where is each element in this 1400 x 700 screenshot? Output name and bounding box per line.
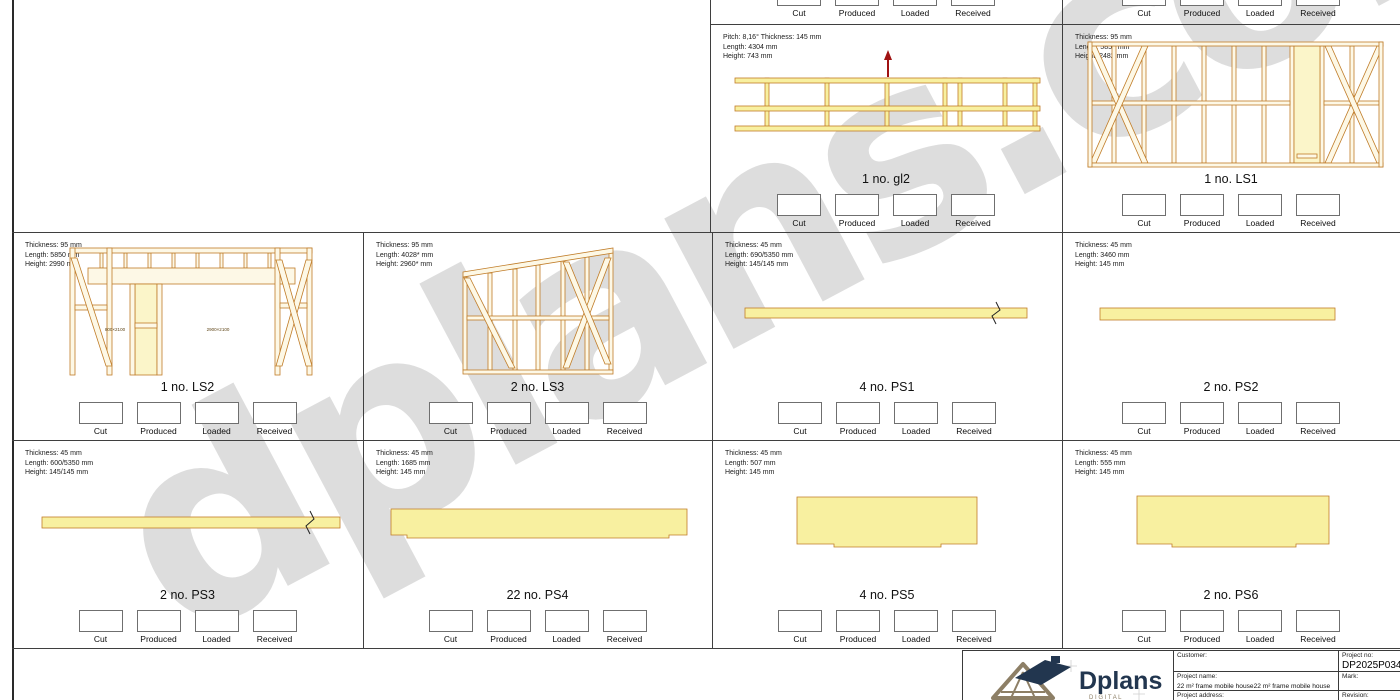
loaded-checkbox[interactable] [894,610,938,632]
produced-checkbox[interactable] [836,402,880,424]
produced-checkbox[interactable] [1180,194,1224,216]
cut-label: Cut [1137,218,1150,228]
checkbox-loaded: Loaded [892,194,938,228]
received-checkbox[interactable] [1296,0,1340,6]
project-no-cell: Project no: DP2025P034 [1339,651,1400,672]
revision-cell: Revision: [1339,691,1400,700]
loaded-checkbox[interactable] [1238,194,1282,216]
opening-size-label: 800×2100 [105,327,126,332]
produced-label: Produced [1184,218,1220,228]
panel-ps3: Thickness: 45 mm Length: 600/5350 mm Hei… [12,440,363,648]
loaded-checkbox[interactable] [894,402,938,424]
up-arrow-icon [884,50,892,77]
checkbox-cut: Cut [78,402,124,436]
cut-checkbox[interactable] [429,610,473,632]
cut-label: Cut [1137,8,1150,18]
wall-frame-drawing: 800×2100 2900×2100 [12,232,363,392]
loaded-checkbox[interactable] [1238,0,1282,6]
loaded-checkbox[interactable] [893,194,937,216]
chimney-icon [1051,656,1060,663]
panel-ps1: Thickness: 45 mm Length: 690/5350 mm Hei… [712,232,1062,440]
loaded-checkbox[interactable] [545,610,589,632]
grid-line [12,648,1400,649]
status-checkboxes: Cut Produced Loaded Received [712,402,1062,436]
dplans-logo-icon: Dplans D I G I T A L [989,656,1179,700]
loaded-label: Loaded [552,426,580,436]
received-label: Received [955,218,990,228]
status-checkboxes: Cut Produced Loaded Received [12,402,363,436]
gable-ladder-drawing [710,24,1062,184]
checkbox-produced: Produced [835,402,881,436]
cut-label: Cut [792,218,805,228]
checkbox-loaded: Loaded [544,402,590,436]
production-sheet: dplans.com Cut Produced Loaded Received … [0,0,1400,700]
project-name-label: Project name: [1177,673,1338,681]
cut-label: Cut [793,426,806,436]
cut-checkbox[interactable] [1122,194,1166,216]
checkbox-received: Received [950,194,996,228]
produced-label: Produced [1184,426,1220,436]
panel-ls2: Thickness: 95 mm Length: 5850 mm Height:… [12,232,363,440]
checkbox-received: Received [1295,402,1341,436]
cut-label: Cut [94,634,107,644]
checkbox-cut: Cut [428,610,474,644]
checkbox-produced: Produced [1179,610,1225,644]
produced-checkbox[interactable] [1180,402,1224,424]
revision-label: Revision: [1342,692,1400,700]
produced-label: Produced [490,426,526,436]
produced-checkbox[interactable] [137,402,181,424]
received-checkbox[interactable] [253,402,297,424]
logo-subtext: D I G I T A L [1089,695,1122,700]
loaded-checkbox[interactable] [1238,402,1282,424]
project-address-label: Project address: [1177,692,1338,700]
panel-ps4: Thickness: 45 mm Length: 1685 mm Height:… [363,440,712,648]
project-name-value: 22 m² frame mobile house22 m² frame mobi… [1177,683,1338,691]
produced-checkbox[interactable] [487,402,531,424]
cut-checkbox[interactable] [79,610,123,632]
plank-drawing [712,232,1062,392]
checkbox-cut: Cut [776,194,822,228]
produced-label: Produced [1184,8,1220,18]
received-checkbox[interactable] [951,0,995,6]
checkbox-produced: Produced [1179,0,1225,18]
checkbox-received: Received [252,610,298,644]
panel-ps5: Thickness: 45 mm Length: 507 mm Height: … [712,440,1062,648]
checkbox-produced: Produced [835,610,881,644]
checkbox-cut: Cut [1121,194,1167,228]
received-checkbox[interactable] [952,402,996,424]
checkbox-produced: Produced [136,610,182,644]
status-checkboxes: Cut Produced Loaded Received [363,402,712,436]
loaded-label: Loaded [202,426,230,436]
status-checkboxes: Cut Produced Loaded Received [710,0,1062,18]
loaded-label: Loaded [1246,426,1274,436]
status-checkboxes: Cut Produced Loaded Received [1062,194,1400,228]
received-checkbox[interactable] [952,610,996,632]
checkbox-produced: Produced [1179,194,1225,228]
sloped-wall-frame-drawing [363,232,712,392]
checkbox-received: Received [252,402,298,436]
produced-checkbox[interactable] [1180,610,1224,632]
received-label: Received [1300,426,1335,436]
produced-label: Produced [1184,634,1220,644]
produced-checkbox[interactable] [835,194,879,216]
produced-label: Produced [140,634,176,644]
received-label: Received [607,634,642,644]
received-label: Received [1300,634,1335,644]
loaded-label: Loaded [1246,8,1274,18]
panel-label: 2 no. PS3 [12,588,363,602]
title-block-right-column: Project no: DP2025P034 Mark: Revision: [1338,651,1400,700]
received-checkbox[interactable] [1296,194,1340,216]
received-checkbox[interactable] [603,402,647,424]
loaded-checkbox[interactable] [1238,610,1282,632]
received-checkbox[interactable] [603,610,647,632]
checkbox-loaded: Loaded [1237,0,1283,18]
opening-size-label: 2900×2100 [207,327,230,332]
status-checkboxes: Cut Produced Loaded Received [12,610,363,644]
received-label: Received [956,426,991,436]
cut-label: Cut [94,426,107,436]
status-checkboxes: Cut Produced Loaded Received [1062,610,1400,644]
cut-checkbox[interactable] [778,610,822,632]
checkbox-produced: Produced [834,194,880,228]
received-label: Received [257,634,292,644]
title-block-left-column: Customer: Project name: 22 m² frame mobi… [1174,651,1338,700]
cut-label: Cut [444,634,457,644]
received-label: Received [1300,8,1335,18]
plank-drawing [363,440,712,600]
cut-checkbox[interactable] [1122,610,1166,632]
produced-label: Produced [140,426,176,436]
received-label: Received [956,634,991,644]
checkbox-produced: Produced [136,402,182,436]
received-label: Received [955,8,990,18]
panel-ps6: Thickness: 45 mm Length: 555 mm Height: … [1062,440,1400,648]
produced-label: Produced [490,634,526,644]
panel-label: 1 no. LS1 [1062,172,1400,186]
cut-label: Cut [1137,426,1150,436]
produced-checkbox[interactable] [835,0,879,6]
checkbox-received: Received [1295,0,1341,18]
cut-label: Cut [793,634,806,644]
received-checkbox[interactable] [1296,402,1340,424]
received-label: Received [257,426,292,436]
checkbox-loaded: Loaded [1237,402,1283,436]
clipped-panel-above-gl2: Cut Produced Loaded Received [710,0,1062,24]
received-label: Received [607,426,642,436]
project-name-cell: Project name: 22 m² frame mobile house22… [1174,672,1338,691]
produced-label: Produced [839,218,875,228]
checkbox-produced: Produced [834,0,880,18]
checkbox-loaded: Loaded [892,0,938,18]
plank-drawing [1062,232,1400,392]
loaded-label: Loaded [202,634,230,644]
produced-checkbox[interactable] [1180,0,1224,6]
loaded-label: Loaded [1246,218,1274,228]
received-checkbox[interactable] [1296,610,1340,632]
status-checkboxes: Cut Produced Loaded Received [712,610,1062,644]
mark-label: Mark: [1342,673,1400,681]
cut-checkbox[interactable] [777,194,821,216]
panel-ps2: Thickness: 45 mm Length: 3460 mm Height:… [1062,232,1400,440]
checkbox-received: Received [602,402,648,436]
received-label: Received [1300,218,1335,228]
loaded-checkbox[interactable] [195,402,239,424]
loaded-label: Loaded [552,634,580,644]
checkbox-cut: Cut [78,610,124,644]
loaded-label: Loaded [902,426,930,436]
produced-checkbox[interactable] [487,610,531,632]
panel-ls3: Thickness: 95 mm Length: 4028* mm Height… [363,232,712,440]
produced-label: Produced [840,426,876,436]
plank-drawing [1062,440,1400,600]
checkbox-cut: Cut [428,402,474,436]
produced-label: Produced [840,634,876,644]
checkbox-cut: Cut [777,402,823,436]
checkbox-loaded: Loaded [544,610,590,644]
panel-label: 4 no. PS1 [712,380,1062,394]
checkbox-received: Received [951,402,997,436]
plank-drawing [712,440,1062,600]
checkbox-cut: Cut [1121,610,1167,644]
customer-cell: Customer: [1174,651,1338,672]
checkbox-loaded: Loaded [194,610,240,644]
project-no-value: DP2025P034 [1342,660,1400,671]
loaded-checkbox[interactable] [195,610,239,632]
project-no-label: Project no: [1342,652,1400,660]
mark-cell: Mark: [1339,672,1400,691]
checkbox-cut: Cut [776,0,822,18]
panel-label: 1 no. gl2 [710,172,1062,186]
received-checkbox[interactable] [951,194,995,216]
status-checkboxes: Cut Produced Loaded Received [710,194,1062,228]
cut-label: Cut [444,426,457,436]
loaded-label: Loaded [901,218,929,228]
checkbox-cut: Cut [777,610,823,644]
title-block: Dplans D I G I T A L Customer: Project n… [962,650,1400,700]
cut-label: Cut [1137,634,1150,644]
plank-drawing [12,440,363,600]
status-checkboxes: Cut Produced Loaded Received [1062,402,1400,436]
checkbox-loaded: Loaded [893,610,939,644]
wall-frame-drawing [1062,24,1400,184]
checkbox-cut: Cut [1121,0,1167,18]
checkbox-loaded: Loaded [1237,610,1283,644]
status-checkboxes: Cut Produced Loaded Received [363,610,712,644]
loaded-checkbox[interactable] [893,0,937,6]
cut-checkbox[interactable] [429,402,473,424]
received-checkbox[interactable] [253,610,297,632]
produced-checkbox[interactable] [137,610,181,632]
produced-label: Produced [839,8,875,18]
checkbox-received: Received [950,0,996,18]
status-checkboxes: Cut Produced Loaded Received [1062,0,1400,18]
loaded-label: Loaded [1246,634,1274,644]
checkbox-received: Received [1295,610,1341,644]
checkbox-loaded: Loaded [1237,194,1283,228]
loaded-label: Loaded [902,634,930,644]
company-logo: Dplans D I G I T A L [963,651,1174,700]
cut-label: Cut [792,8,805,18]
panel-label: 2 no. PS6 [1062,588,1400,602]
checkbox-produced: Produced [486,610,532,644]
panel-label: 22 no. PS4 [363,588,712,602]
checkbox-loaded: Loaded [893,402,939,436]
checkbox-received: Received [602,610,648,644]
panel-label: 4 no. PS5 [712,588,1062,602]
clipped-panel-above-ls1: Cut Produced Loaded Received [1062,0,1400,24]
panel-gl2: Pitch: 8,16° Thickness: 145 mm Length: 4… [710,24,1062,232]
panel-label: 2 no. PS2 [1062,380,1400,394]
cut-checkbox[interactable] [79,402,123,424]
cut-checkbox[interactable] [1122,0,1166,6]
cut-checkbox[interactable] [777,0,821,6]
panel-ls1: Thickness: 95 mm Length: 5850 mm Height:… [1062,24,1400,232]
checkbox-produced: Produced [486,402,532,436]
checkbox-cut: Cut [1121,402,1167,436]
checkbox-loaded: Loaded [194,402,240,436]
produced-checkbox[interactable] [836,610,880,632]
checkbox-received: Received [951,610,997,644]
project-address-cell: Project address: [1174,691,1338,700]
checkbox-produced: Produced [1179,402,1225,436]
panel-label: 1 no. LS2 [12,380,363,394]
logo-wordmark: Dplans [1079,667,1162,695]
cut-checkbox[interactable] [1122,402,1166,424]
panel-label: 2 no. LS3 [363,380,712,394]
loaded-checkbox[interactable] [545,402,589,424]
checkbox-received: Received [1295,194,1341,228]
customer-label: Customer: [1177,652,1338,660]
cut-checkbox[interactable] [778,402,822,424]
loaded-label: Loaded [901,8,929,18]
